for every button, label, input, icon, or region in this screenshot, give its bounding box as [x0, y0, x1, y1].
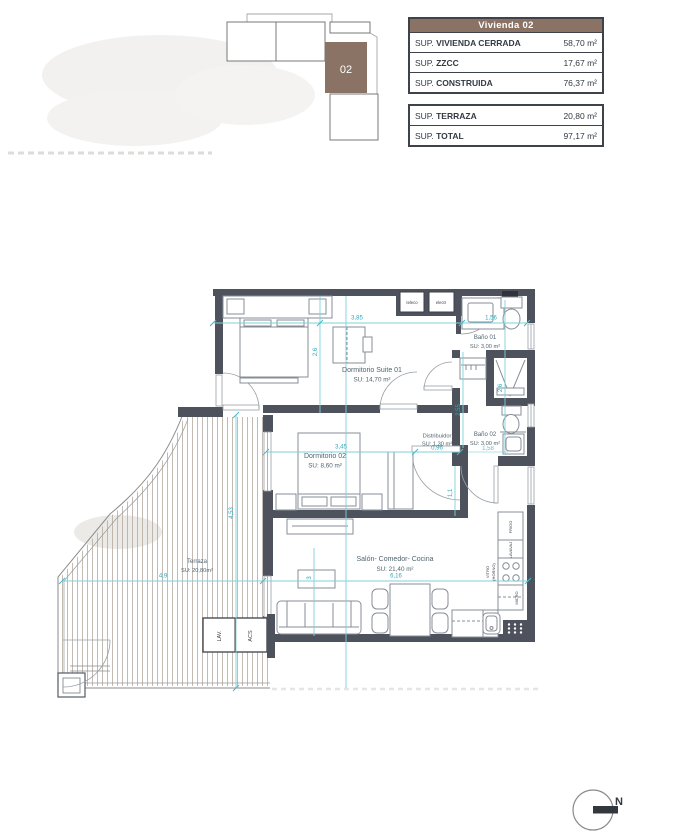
row-value: 17,67 m²: [563, 58, 597, 68]
chair: [432, 613, 448, 633]
dim-dorm02-w: 3,45: [335, 445, 347, 451]
row-value: 97,17 m²: [563, 131, 597, 141]
dim-salon-w: 6,16: [390, 574, 402, 580]
micro-label: MICRO: [514, 591, 519, 604]
table-header: Vivienda 02: [410, 19, 602, 32]
surface-table-totals: SUP. TERRAZA 20,80 m² SUP. TOTAL 97,17 m…: [408, 104, 604, 147]
toilet-bano01: [501, 297, 522, 308]
teleco-label: teleco: [406, 300, 418, 305]
lavavaj-label: LAVAVAJ: [508, 542, 513, 558]
table-row: SUP. TOTAL 97,17 m²: [410, 125, 602, 145]
sofa: [277, 601, 361, 634]
row-value: 20,80 m²: [563, 111, 597, 121]
room-area-salon: SU: 21,40 m²: [376, 566, 413, 573]
room-label-bano02: Baño 02: [474, 432, 497, 438]
key-plan-roofline: [247, 14, 332, 22]
room-area-dorm02: SU: 8,60 m²: [308, 463, 342, 470]
floorplan-page: 02: [0, 0, 675, 836]
row-value: 58,70 m²: [563, 38, 597, 48]
room-label-terraza: Terraza: [187, 559, 208, 565]
row-label: SUP. TOTAL: [415, 131, 464, 141]
dim-bano01-w: 1,56: [485, 316, 497, 322]
terrace: [58, 414, 270, 697]
room-label-salon: Salón- Comedor- Cocina: [356, 556, 433, 563]
electr-label: electr: [436, 300, 447, 305]
horno-label: (HORNO): [491, 563, 496, 581]
room-area-bano01: SU: 3,00 m²: [470, 344, 500, 350]
table-row: SUP. CONSTRUIDA 76,37 m²: [410, 72, 602, 92]
chair: [432, 589, 448, 609]
dim-bano-right-h: 2,6: [498, 383, 504, 392]
dresser-suite: [333, 327, 365, 363]
terrace-opening-suite: [216, 375, 222, 406]
room-area-bano02: SU: 3,00 m²: [470, 441, 500, 447]
acs-label: ACS: [248, 630, 254, 642]
room-area-suite: SU: 14,70 m²: [353, 377, 390, 384]
surface-table-closed: Vivienda 02 SUP. VIVIENDA CERRADA 58,70 …: [408, 17, 604, 94]
room-area-terraza: SU: 20,80m²: [181, 568, 213, 574]
dim-terraza-h: 4,53: [229, 507, 235, 519]
north-label: N: [615, 796, 623, 808]
row-label: SUP. VIVIENDA CERRADA: [415, 38, 521, 48]
desk-dorm02: [388, 452, 413, 509]
coffee-table: [298, 570, 335, 588]
furniture-bano02: [500, 406, 526, 454]
room-area-distribuidor: SU: 1,30 m²: [422, 442, 452, 448]
row-label: SUP. TERRAZA: [415, 111, 477, 121]
dim-suite-h: 2,6: [313, 347, 319, 356]
entry-door-leaf: [456, 296, 461, 334]
vitro-label: VITRO: [485, 566, 490, 578]
room-label-bano01: Baño 01: [474, 335, 497, 341]
table-row: SUP. ZZCC 17,67 m²: [410, 52, 602, 72]
chair: [372, 613, 388, 633]
north-arrow-icon: N: [573, 790, 623, 830]
dim-closet-h: 2,55: [456, 404, 462, 416]
room-label-dorm02: Dormitorio 02: [304, 453, 346, 460]
dim-suite-w: 3,85: [351, 316, 363, 322]
row-value: 76,37 m²: [563, 78, 597, 88]
frigo-label: FRIGO: [508, 521, 513, 534]
closet-bano01: [460, 358, 486, 379]
lav-label: LAV.: [217, 630, 223, 641]
room-label-distribuidor: Distribuidor: [423, 434, 452, 440]
room-label-suite: Dormitorio Suite 01: [342, 367, 402, 374]
dining-table: [390, 584, 430, 636]
table-row: SUP. TERRAZA 20,80 m²: [410, 106, 602, 125]
furniture-salon: [277, 519, 448, 636]
key-plan-unit-label: 02: [340, 64, 352, 76]
table-row: SUP. VIVIENDA CERRADA 58,70 m²: [410, 32, 602, 52]
row-label: SUP. ZZCC: [415, 58, 459, 68]
row-label: SUP. CONSTRUIDA: [415, 78, 493, 88]
terrace-drain: [58, 673, 85, 697]
chair: [372, 589, 388, 609]
dim-hall-h: 1,1: [448, 488, 454, 497]
dim-terraza-w: 4,9: [159, 574, 168, 580]
